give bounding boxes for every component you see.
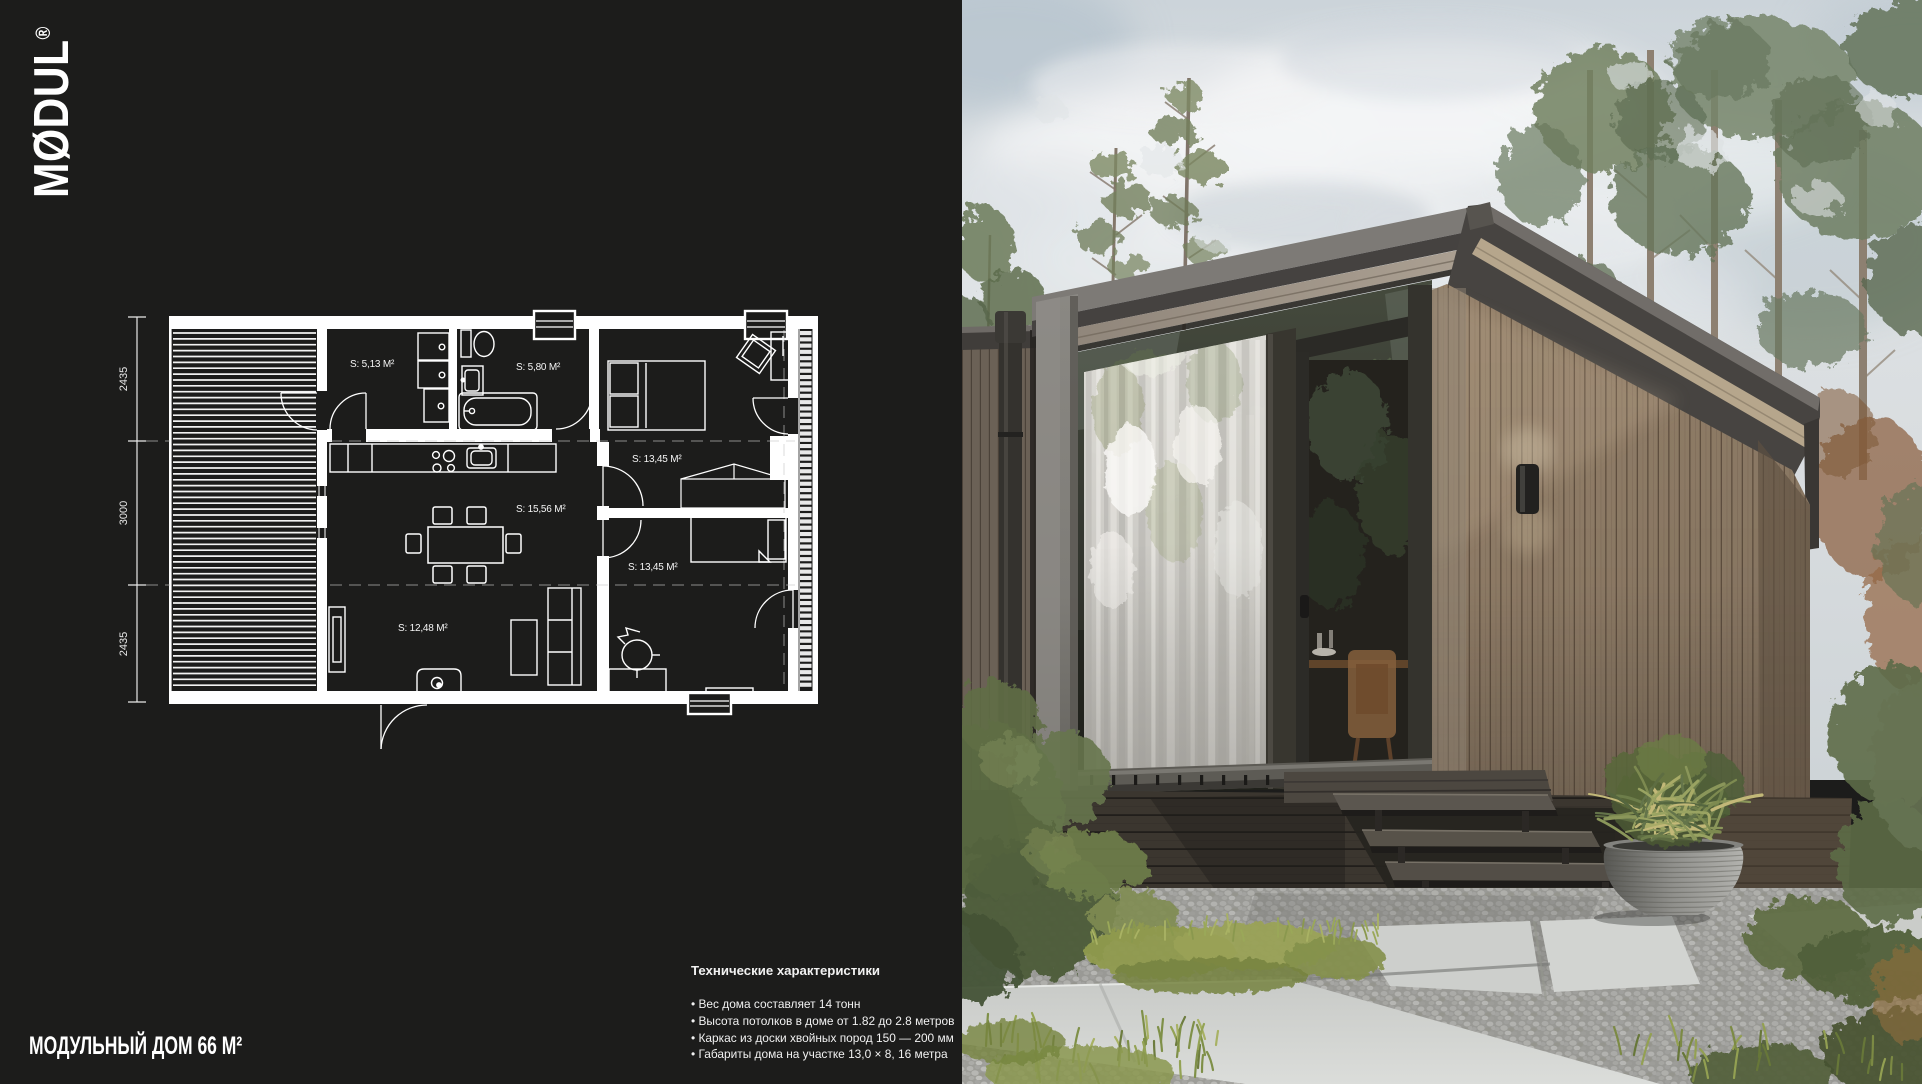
svg-text:S: 12,48 М²: S: 12,48 М² bbox=[398, 623, 448, 634]
svg-text:S: 13,45 М²: S: 13,45 М² bbox=[632, 454, 682, 465]
svg-text:2435: 2435 bbox=[118, 632, 130, 656]
svg-text:2435: 2435 bbox=[118, 367, 130, 391]
svg-text:S: 15,56 М²: S: 15,56 М² bbox=[516, 504, 566, 515]
svg-text:S: 5,80 М²: S: 5,80 М² bbox=[516, 362, 561, 373]
svg-text:3000: 3000 bbox=[118, 501, 130, 525]
svg-text:S: 13,45 М²: S: 13,45 М² bbox=[628, 562, 678, 573]
svg-text:S: 5,13 М²: S: 5,13 М² bbox=[350, 359, 395, 370]
